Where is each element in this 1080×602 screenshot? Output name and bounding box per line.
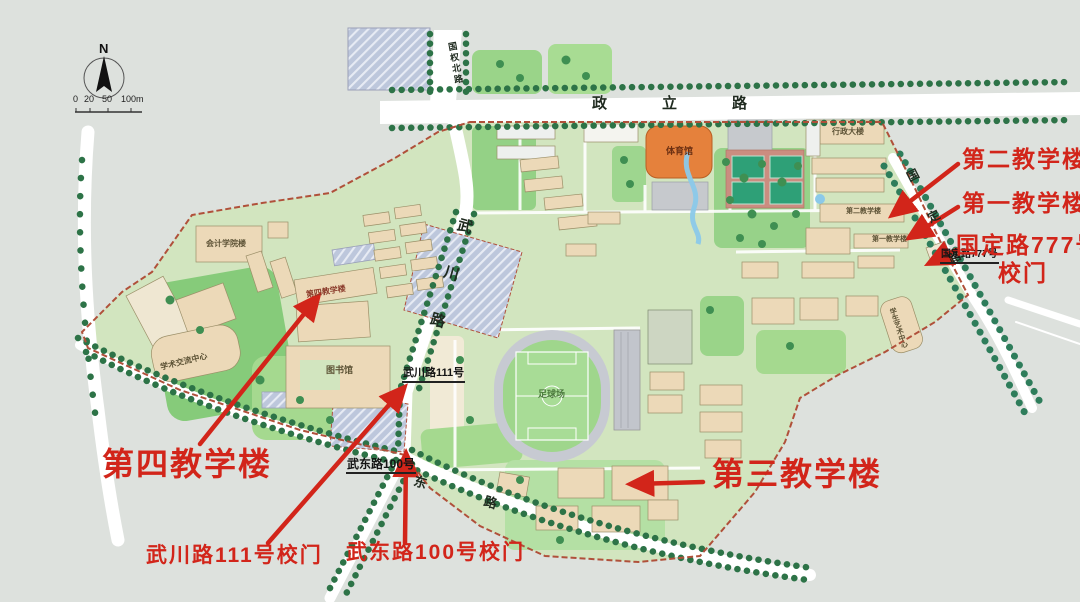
- north-label: N: [99, 42, 108, 56]
- map-label-wudong-100: 武东路100号: [346, 458, 416, 474]
- scale-tick-100m: 100m: [121, 95, 144, 104]
- annotation-teach2: 第二教学楼: [962, 147, 1080, 171]
- annotation-gate777-line2: 校门: [998, 261, 1048, 285]
- road-label-zhengli: 政立路: [592, 96, 802, 112]
- map-label-wuchuan-111: 武川路111号: [402, 368, 465, 383]
- annotation-gate777-line1: 国定路777号: [956, 233, 1080, 257]
- scale-tick-0: 0: [73, 95, 78, 104]
- bldg-label-teach2: 第二教学楼: [846, 208, 881, 215]
- bldg-label-accounting: 会计学院楼: [206, 240, 246, 248]
- bldg-label-gym: 体育馆: [666, 147, 693, 156]
- scale-tick-50: 50: [102, 95, 112, 104]
- bldg-label-teach1: 第一教学楼: [872, 236, 907, 243]
- scale-tick-20: 20: [84, 95, 94, 104]
- annotation-teach4: 第四教学楼: [102, 448, 272, 482]
- annotation-teach3: 第三教学楼: [712, 458, 882, 492]
- annotation-gate-wudong: 武东路100号校门: [346, 542, 525, 564]
- bldg-label-football: 足球场: [538, 390, 565, 399]
- annotation-gate-wuchuan: 武川路111号校门: [146, 545, 323, 567]
- bldg-label-admin: 行政大楼: [832, 128, 864, 136]
- bldg-label-library: 图书馆: [326, 366, 353, 375]
- annotation-teach1: 第一教学楼: [962, 191, 1080, 215]
- campus-map: N 0 20 50 100m 政立路 国权北路 武川路 东路 国定路 武川路11…: [0, 0, 1080, 602]
